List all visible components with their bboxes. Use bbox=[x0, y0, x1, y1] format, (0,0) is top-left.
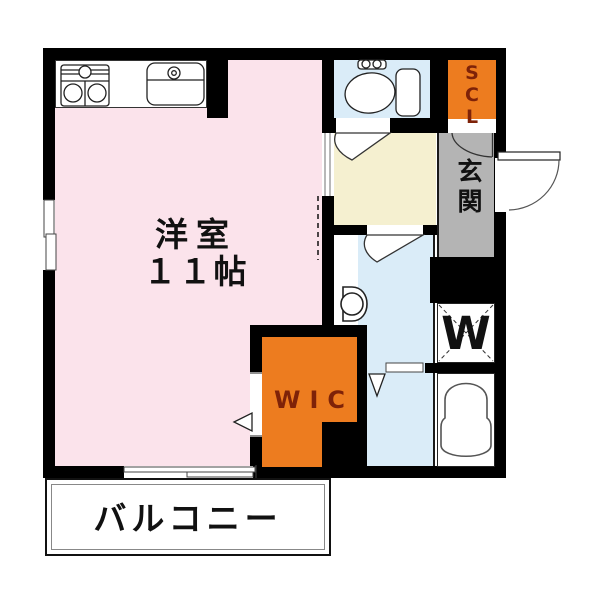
entrance-door-swing bbox=[498, 152, 560, 210]
washroom-door-swing bbox=[364, 235, 423, 262]
toilet-door-swing bbox=[335, 133, 390, 160]
bathtub-icon bbox=[438, 374, 495, 467]
window-left-panes bbox=[44, 200, 56, 270]
main-room-label: 洋室 １１帖 bbox=[66, 216, 326, 290]
sliding-door-frame bbox=[325, 133, 330, 196]
wic-entry-arrow bbox=[234, 373, 262, 436]
toilet-icon bbox=[342, 60, 420, 116]
shoe-closet-label: SCL bbox=[461, 62, 483, 128]
wic-label: WIC bbox=[262, 386, 357, 414]
balcony-label: バルコニー bbox=[45, 492, 331, 540]
entrance-label: 玄関 bbox=[450, 158, 486, 218]
main-room-size: １１帖 bbox=[66, 253, 326, 290]
washbasin-icon bbox=[341, 287, 367, 321]
scl-door-swing bbox=[452, 133, 493, 157]
floor-plan: 洋室 １１帖 バルコニー 玄関 SCL WIC W bbox=[0, 0, 600, 600]
stove-icon bbox=[61, 65, 109, 106]
bathroom-entry-arrow bbox=[369, 363, 423, 396]
main-room-name: 洋室 bbox=[66, 216, 326, 253]
window-balcony-panes bbox=[124, 465, 256, 478]
sink-icon bbox=[147, 63, 204, 105]
washer-label: W bbox=[437, 305, 495, 362]
